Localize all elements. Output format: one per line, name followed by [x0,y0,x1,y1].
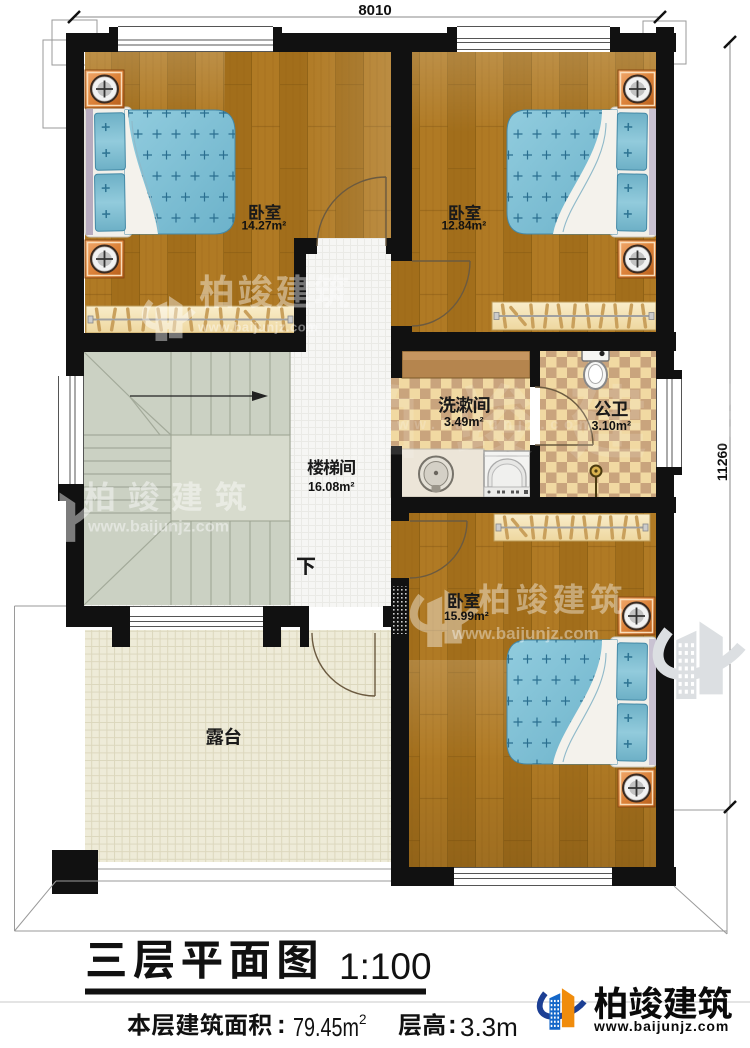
svg-text:www.baijunjz.com: www.baijunjz.com [379,416,597,433]
svg-text:3.10m²: 3.10m² [592,419,632,433]
svg-text:3.3m: 3.3m [460,1012,518,1042]
svg-text:www.baijunjz.com: www.baijunjz.com [197,320,318,335]
svg-text:12.84m²: 12.84m² [442,219,487,233]
svg-text:79.45m: 79.45m [293,1012,359,1042]
svg-text::: : [277,1009,286,1039]
svg-text:2: 2 [359,1012,367,1027]
svg-text:15.99m²: 15.99m² [444,609,489,623]
svg-text:3.49m²: 3.49m² [444,415,484,429]
svg-text:www.baijunjz.com: www.baijunjz.com [593,1018,729,1034]
svg-text:1:100: 1:100 [339,946,432,987]
svg-text:www.baijunjz.com: www.baijunjz.com [451,624,599,643]
svg-text:14.27m²: 14.27m² [242,219,287,233]
svg-text:www.baijunjz.com: www.baijunjz.com [87,519,229,536]
svg-text:16.08m²: 16.08m² [308,480,355,494]
svg-text::: : [448,1009,457,1039]
svg-text:8010: 8010 [358,2,391,19]
